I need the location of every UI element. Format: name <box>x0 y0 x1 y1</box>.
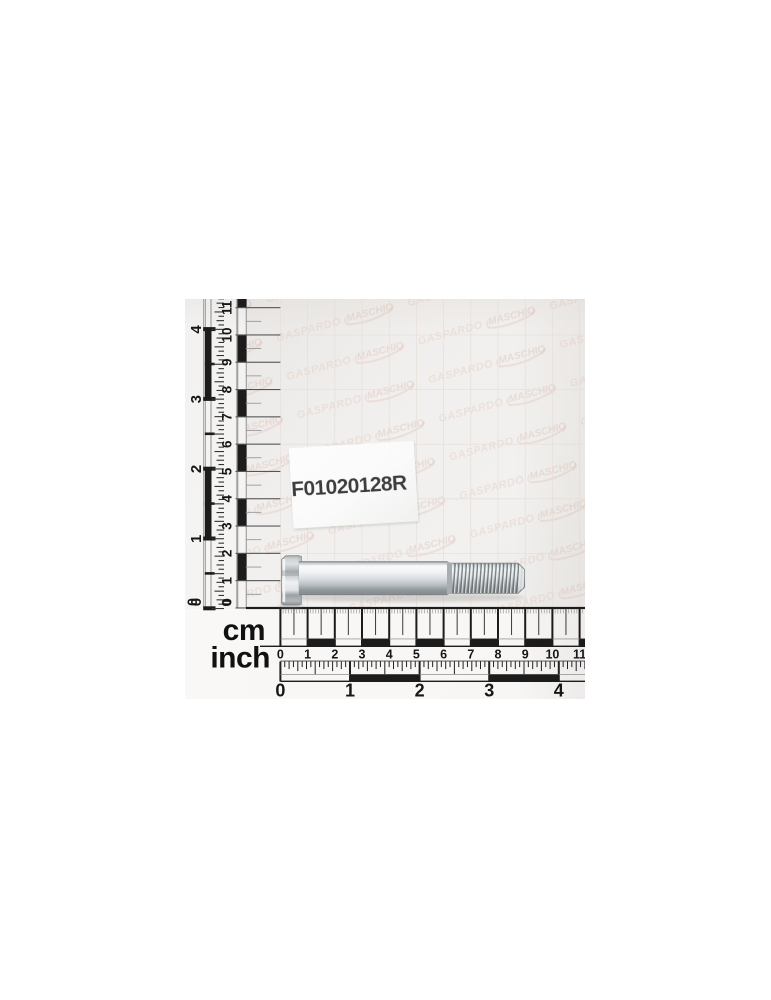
svg-text:10: 10 <box>545 648 559 662</box>
svg-text:11: 11 <box>573 648 585 662</box>
svg-text:3: 3 <box>359 648 366 662</box>
svg-text:4: 4 <box>386 648 393 662</box>
svg-text:4: 4 <box>554 681 564 700</box>
svg-text:3: 3 <box>188 395 205 403</box>
svg-text:7: 7 <box>220 413 235 421</box>
svg-text:8: 8 <box>495 648 502 662</box>
svg-text:4: 4 <box>188 325 205 334</box>
svg-text:1: 1 <box>304 648 311 662</box>
svg-text:1: 1 <box>188 535 205 543</box>
svg-text:3: 3 <box>220 522 235 530</box>
svg-text:10: 10 <box>220 327 235 342</box>
svg-text:0: 0 <box>220 599 234 606</box>
svg-text:6: 6 <box>220 440 235 448</box>
svg-text:2: 2 <box>188 465 205 473</box>
svg-text:7: 7 <box>467 648 474 662</box>
svg-text:1: 1 <box>345 681 355 700</box>
svg-text:3: 3 <box>484 681 494 700</box>
svg-text:1: 1 <box>220 576 235 584</box>
svg-text:9: 9 <box>220 359 235 367</box>
svg-text:inch: inch <box>210 642 270 675</box>
svg-text:0: 0 <box>185 598 200 606</box>
svg-text:11: 11 <box>220 300 235 315</box>
svg-text:6: 6 <box>440 648 447 662</box>
svg-text:2: 2 <box>415 681 425 700</box>
svg-text:8: 8 <box>220 385 235 393</box>
svg-text:5: 5 <box>413 648 420 662</box>
svg-text:2: 2 <box>331 648 338 662</box>
svg-text:4: 4 <box>220 495 235 503</box>
svg-text:2: 2 <box>220 550 235 558</box>
svg-text:0: 0 <box>277 648 284 662</box>
svg-text:9: 9 <box>522 648 529 662</box>
svg-text:5: 5 <box>220 467 235 475</box>
svg-text:0: 0 <box>275 681 285 700</box>
